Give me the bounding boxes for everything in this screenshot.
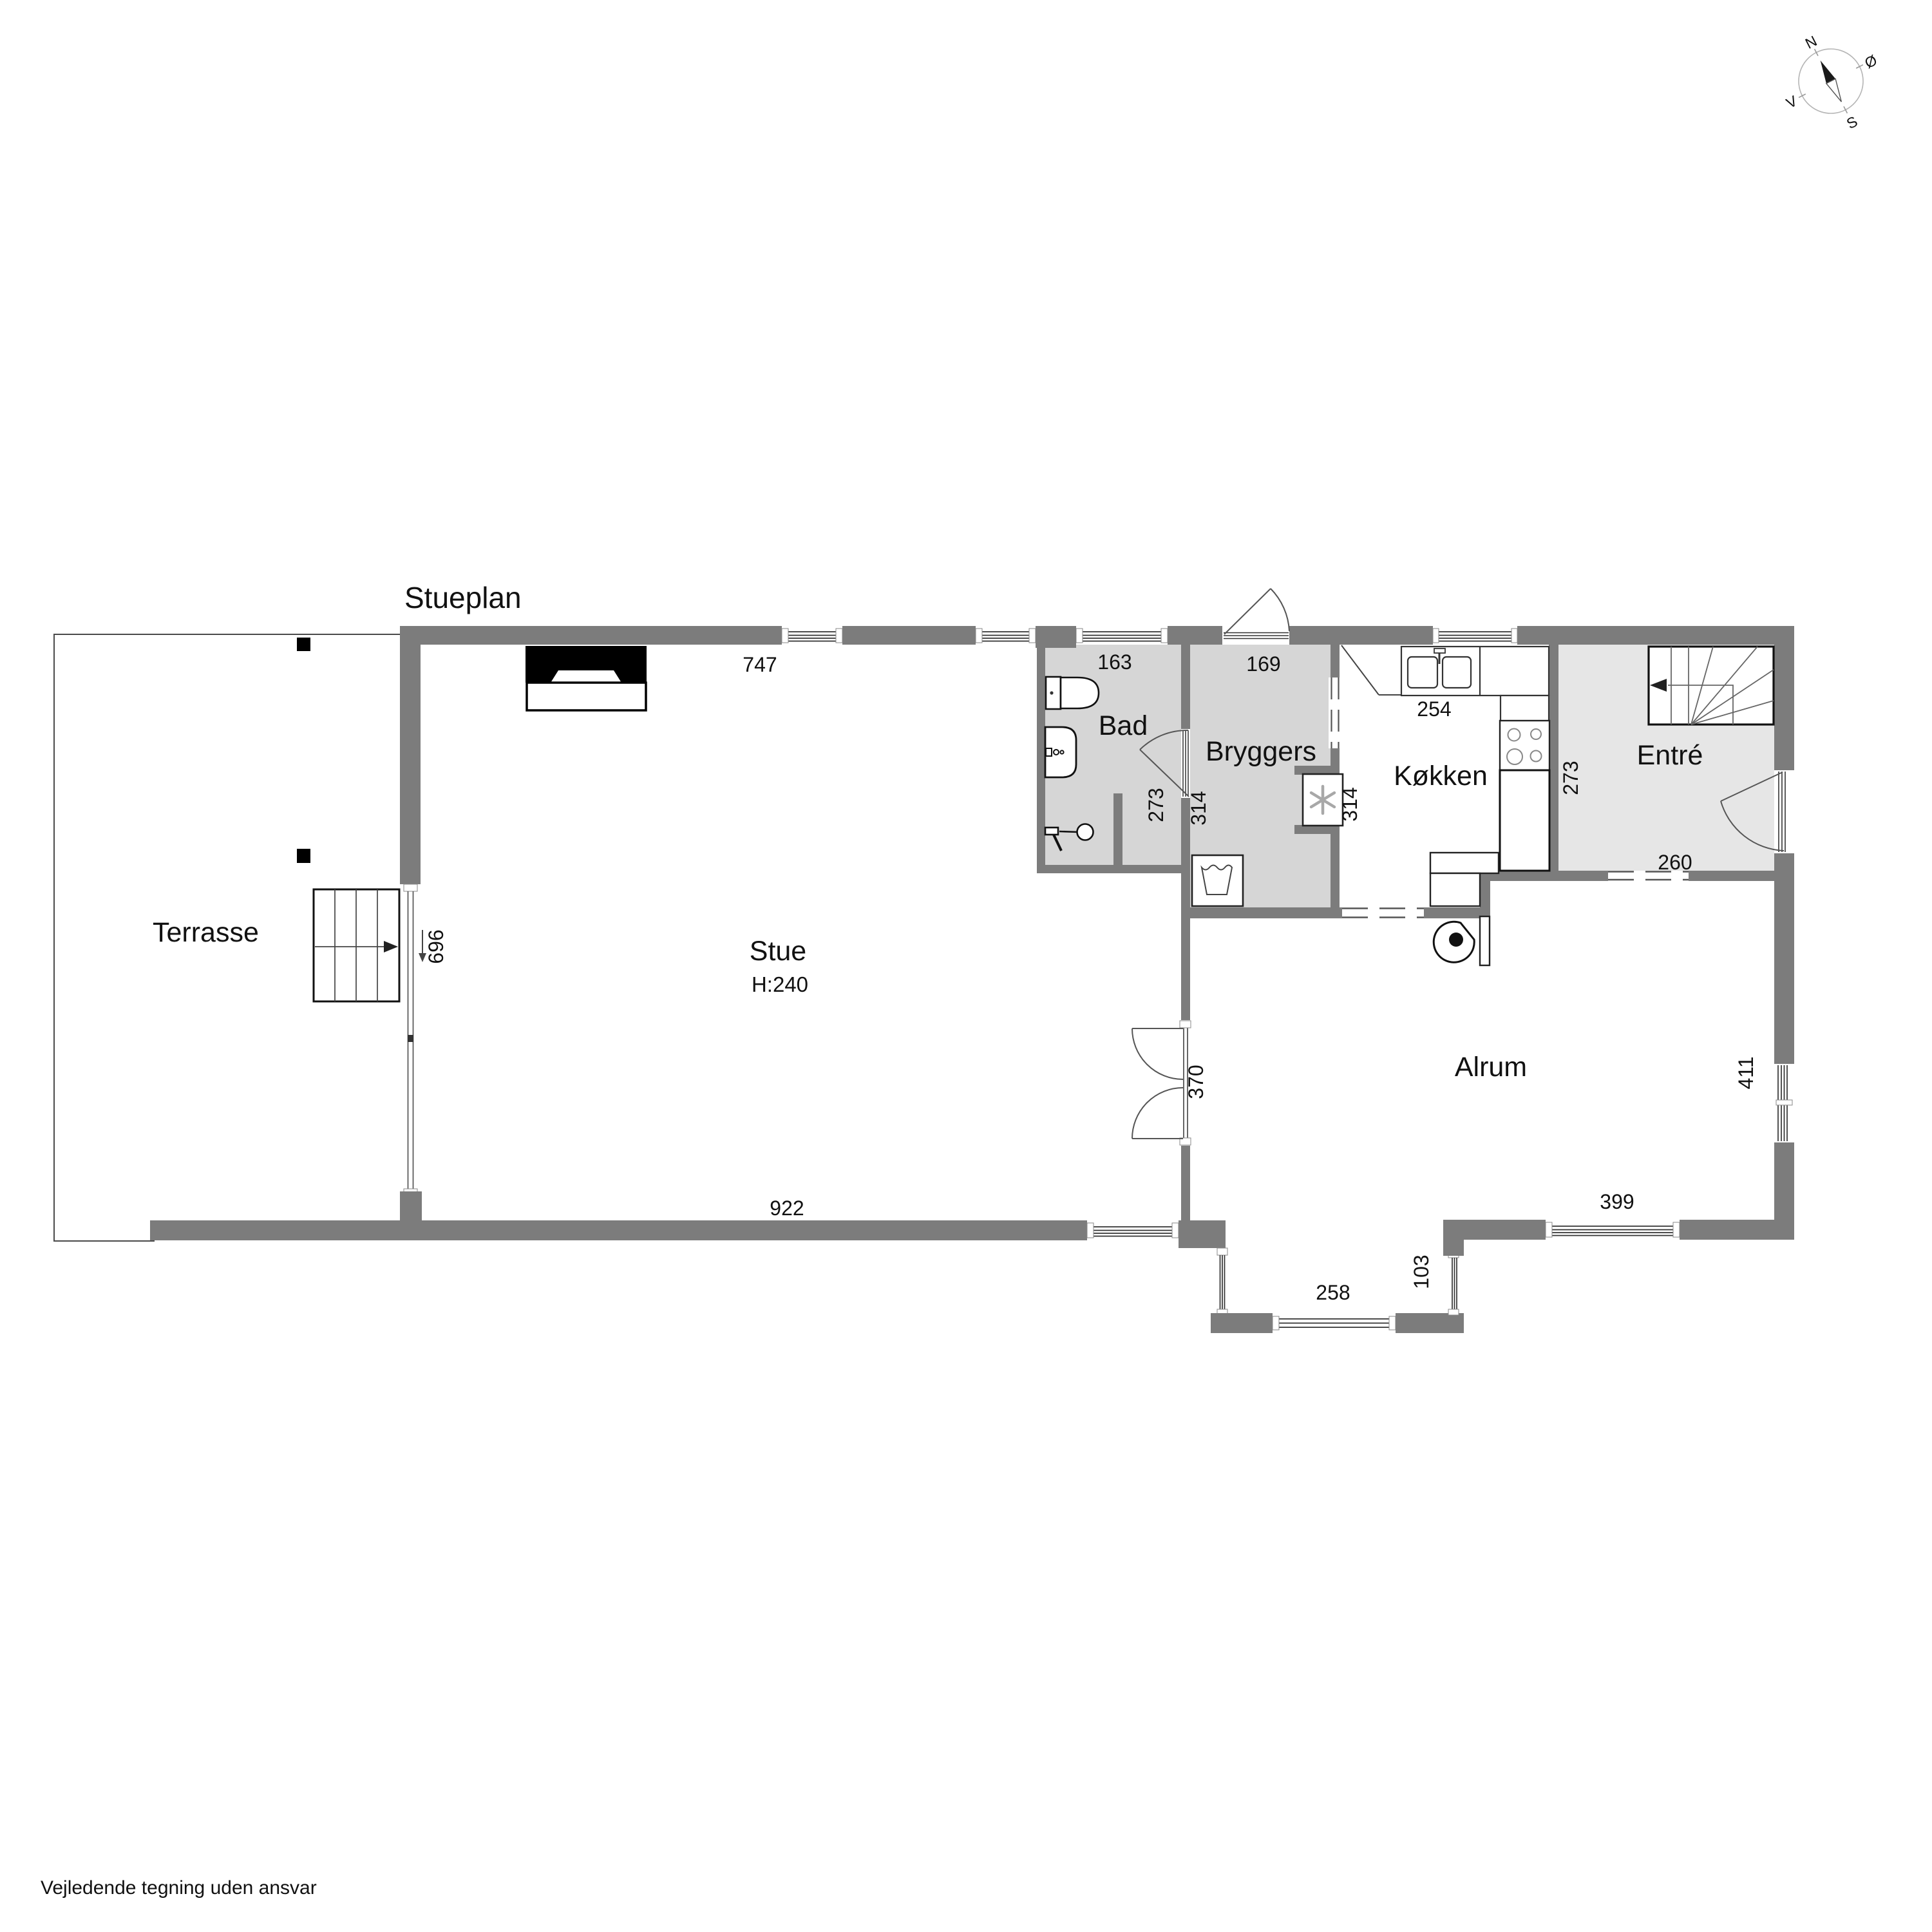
svg-text:Entré: Entré: [1637, 740, 1703, 771]
svg-text:314: 314: [1187, 791, 1210, 825]
svg-text:260: 260: [1658, 851, 1692, 874]
svg-text:Stue: Stue: [750, 936, 806, 967]
svg-text:411: 411: [1734, 1056, 1757, 1089]
svg-text:Stueplan: Stueplan: [404, 581, 522, 614]
svg-text:314: 314: [1338, 787, 1361, 821]
svg-text:103: 103: [1410, 1255, 1433, 1289]
svg-text:273: 273: [1144, 788, 1168, 822]
svg-text:Bad: Bad: [1099, 710, 1148, 741]
svg-text:254: 254: [1417, 697, 1451, 721]
svg-text:747: 747: [743, 653, 777, 676]
svg-text:370: 370: [1184, 1065, 1207, 1099]
svg-text:Bryggers: Bryggers: [1206, 736, 1316, 767]
svg-text:H:240: H:240: [752, 972, 808, 996]
svg-text:922: 922: [770, 1197, 804, 1220]
svg-text:169: 169: [1246, 652, 1280, 676]
svg-text:696: 696: [424, 929, 448, 963]
svg-text:258: 258: [1316, 1281, 1350, 1304]
svg-text:Terrasse: Terrasse: [153, 917, 259, 948]
svg-text:Køkken: Køkken: [1394, 761, 1488, 791]
svg-text:273: 273: [1559, 761, 1582, 795]
svg-text:399: 399: [1600, 1190, 1634, 1213]
svg-text:163: 163: [1097, 650, 1132, 674]
svg-text:Vejledende tegning uden ansvar: Vejledende tegning uden ansvar: [41, 1877, 317, 1899]
svg-text:Alrum: Alrum: [1455, 1052, 1527, 1083]
